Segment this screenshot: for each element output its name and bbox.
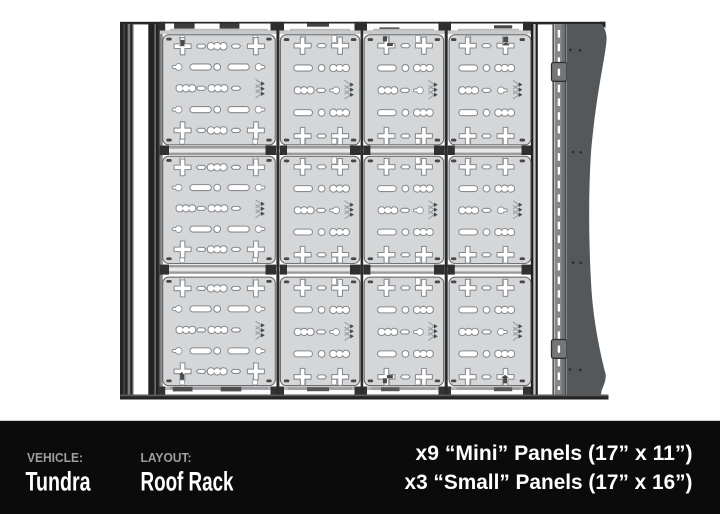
svg-text:VEHICLE:: VEHICLE:	[27, 450, 83, 465]
svg-text:Roof Rack: Roof Rack	[141, 467, 235, 497]
svg-text:LAYOUT:: LAYOUT:	[141, 450, 192, 465]
svg-text:Tundra: Tundra	[26, 467, 92, 497]
svg-text:x3 “Small” Panels (17” x 16”): x3 “Small” Panels (17” x 16”)	[405, 471, 693, 494]
svg-text:x9 “Mini” Panels (17” x 11”): x9 “Mini” Panels (17” x 11”)	[416, 442, 693, 465]
